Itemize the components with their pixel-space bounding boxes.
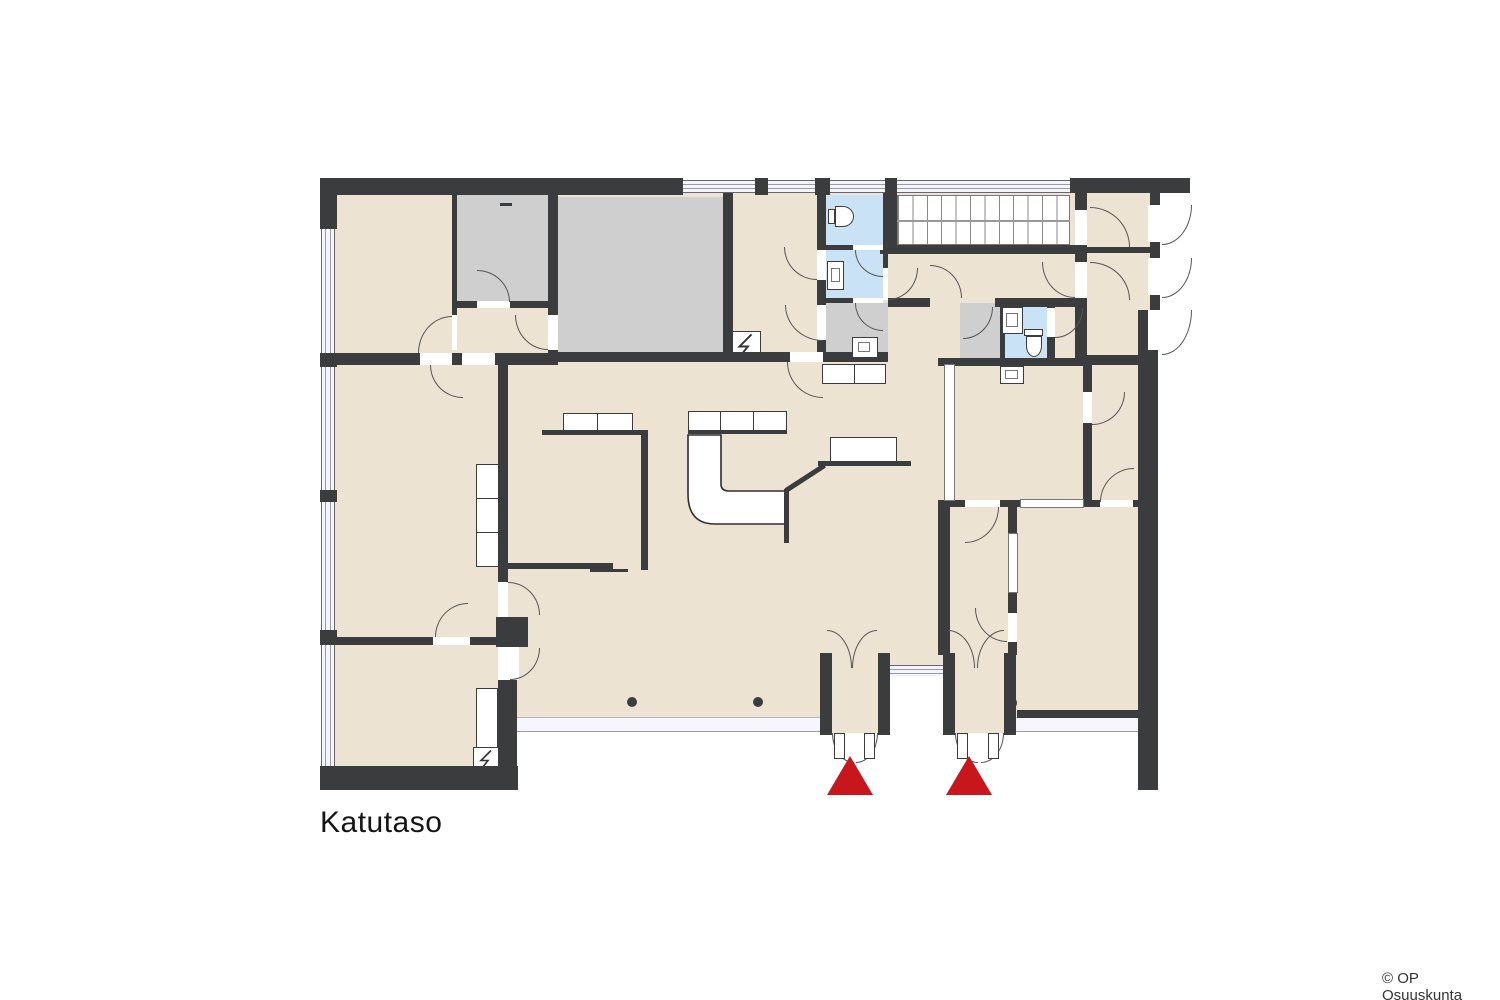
wall [1087, 355, 1138, 365]
window [830, 180, 885, 193]
door-opening [433, 637, 470, 645]
shelf-divider [477, 532, 499, 533]
window [321, 367, 335, 490]
wall [817, 193, 826, 250]
partial-wall [590, 569, 628, 572]
sink-basin [1006, 313, 1018, 327]
wall [320, 490, 337, 502]
door-opening [1008, 613, 1017, 642]
wall [1087, 500, 1100, 507]
entrance-arrow-icon [827, 756, 873, 795]
toilet-tank [828, 209, 835, 224]
wall [1150, 193, 1160, 205]
sink-basin [1005, 370, 1018, 379]
door-swing-arc [1162, 205, 1192, 245]
window [683, 180, 755, 193]
door-opening [1075, 262, 1087, 298]
wall [880, 245, 1087, 254]
door-opening [965, 500, 1000, 507]
cabinet-divider [753, 411, 754, 431]
wall [826, 245, 853, 250]
door-opening [420, 353, 452, 365]
window [321, 229, 335, 353]
wall [1083, 423, 1092, 507]
interior-glass-partition [1008, 533, 1018, 593]
wall [1008, 593, 1017, 613]
service-counter [687, 434, 789, 526]
counter-partition [542, 430, 648, 435]
stairs-handrail [897, 220, 1070, 222]
wall [457, 301, 477, 308]
wall [1000, 500, 1022, 507]
wall [548, 350, 558, 353]
wall [1070, 178, 1190, 193]
storefront-glass [517, 717, 820, 732]
door-opening [462, 353, 495, 365]
wall [826, 298, 853, 303]
wall [452, 193, 457, 315]
wall [1138, 310, 1158, 790]
wall [320, 178, 683, 195]
wall [938, 358, 1087, 366]
copyright-text: © OP Osuuskunta [1382, 970, 1500, 1000]
wall [883, 254, 888, 268]
counter-partition [641, 430, 648, 570]
column-dot [627, 697, 637, 707]
wall [755, 178, 768, 195]
wall [320, 766, 518, 790]
entrance-arrow-icon [946, 756, 992, 795]
wall [1004, 653, 1016, 735]
wall [888, 298, 930, 307]
storefront-glass [1016, 717, 1138, 732]
toilet-tank [1024, 329, 1043, 336]
door-swing-arc [1162, 258, 1192, 298]
sink-basin [831, 268, 840, 282]
column-dot [753, 697, 763, 707]
cabinet-divider [720, 411, 721, 431]
interior-glass-partition [1020, 499, 1084, 508]
wall [320, 353, 420, 365]
door-opening [1148, 258, 1162, 295]
cabinet-divider [854, 364, 855, 384]
door-opening [1148, 310, 1162, 350]
door-opening [790, 352, 823, 362]
cabinet-row [688, 411, 787, 431]
wall [817, 280, 826, 305]
wall [1017, 710, 1138, 718]
door-opening [1148, 205, 1162, 242]
wall [498, 680, 517, 790]
door-opening [498, 582, 508, 617]
door-opening [817, 250, 826, 280]
wall-mark [500, 203, 512, 206]
wall [1008, 507, 1017, 533]
column-dot [1005, 697, 1017, 709]
wall [1075, 193, 1087, 210]
window [768, 180, 815, 193]
counter-end-wall [784, 489, 789, 543]
wall [548, 308, 558, 315]
door-opening [477, 301, 510, 308]
column-dot [878, 697, 890, 709]
window [321, 502, 335, 630]
shelf [476, 464, 500, 567]
cabinet-divider [597, 413, 598, 432]
counter-desk [830, 437, 897, 462]
floor-plan-katutaso: Katutaso © OP Osuuskunta [0, 0, 1500, 1000]
wall [496, 617, 528, 647]
shelf-divider [477, 498, 499, 499]
storage-room-large [558, 197, 723, 355]
storefront-glass-recess [888, 665, 945, 677]
window [897, 180, 1070, 193]
sink-basin [858, 342, 870, 352]
door-opening [452, 315, 457, 350]
wall [723, 193, 733, 360]
wall [878, 653, 890, 735]
wall [995, 298, 1087, 307]
wall [548, 178, 558, 308]
door-opening [1047, 308, 1055, 337]
wall [498, 355, 508, 582]
exterior-recess [890, 677, 943, 735]
wall [510, 301, 548, 308]
wall [1075, 245, 1087, 262]
page-title: Katutaso [320, 806, 442, 840]
wall [320, 195, 337, 229]
door-opening [1075, 210, 1087, 245]
wall [320, 637, 433, 645]
wall [1083, 365, 1092, 392]
interior-glass-partition [944, 364, 955, 501]
cabinet [476, 688, 498, 749]
door-opening [548, 315, 558, 350]
wall [558, 352, 790, 362]
wall [1150, 295, 1160, 310]
door-opening [1083, 392, 1092, 423]
door-swing-arc [1162, 310, 1192, 355]
window [321, 645, 335, 767]
wall [452, 353, 462, 365]
wall [1150, 242, 1160, 258]
